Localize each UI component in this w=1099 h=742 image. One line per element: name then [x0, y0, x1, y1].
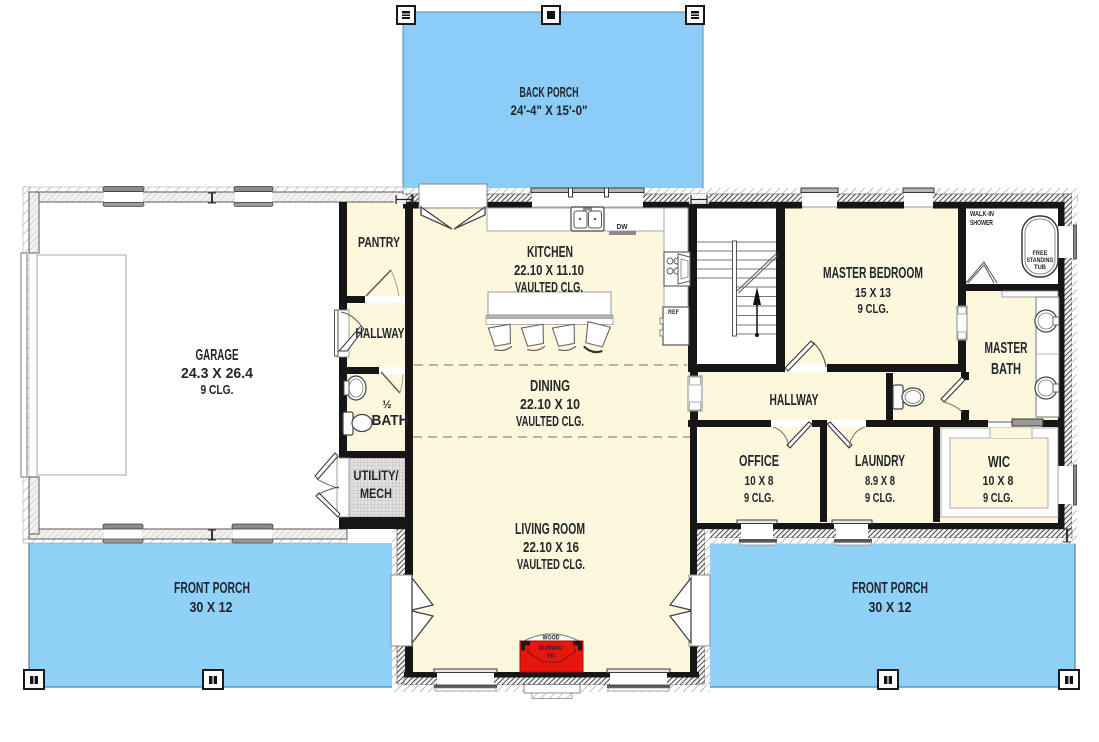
svg-text:HALLWAY: HALLWAY — [356, 326, 405, 342]
svg-text:BURNING: BURNING — [539, 646, 563, 652]
svg-text:LAUNDRY: LAUNDRY — [855, 453, 905, 470]
svg-text:½: ½ — [382, 399, 391, 411]
svg-text:UTILITY/: UTILITY/ — [354, 467, 399, 483]
svg-text:BACK PORCH: BACK PORCH — [520, 84, 579, 101]
svg-text:9 CLG.: 9 CLG. — [865, 490, 895, 505]
svg-text:OFFICE: OFFICE — [739, 453, 779, 470]
svg-text:MECH: MECH — [360, 485, 392, 501]
svg-text:22.10 X 10: 22.10 X 10 — [520, 396, 580, 413]
svg-text:FP: FP — [547, 654, 555, 660]
svg-text:KITCHEN: KITCHEN — [527, 244, 573, 261]
svg-text:DW: DW — [617, 224, 628, 231]
svg-text:30 X 12: 30 X 12 — [869, 599, 912, 616]
svg-text:TUB: TUB — [1034, 265, 1047, 271]
svg-text:WIC: WIC — [988, 454, 1010, 471]
svg-text:15 X 13: 15 X 13 — [855, 285, 891, 300]
svg-text:FRONT PORCH: FRONT PORCH — [852, 580, 928, 597]
svg-text:9 CLG.: 9 CLG. — [858, 301, 889, 316]
svg-text:22.10 X 16: 22.10 X 16 — [523, 539, 579, 556]
svg-text:FREE: FREE — [1033, 251, 1048, 257]
svg-text:10 X 8: 10 X 8 — [745, 473, 774, 488]
svg-text:PANTRY: PANTRY — [358, 235, 400, 251]
svg-text:LIVING ROOM: LIVING ROOM — [515, 521, 585, 538]
svg-text:BATH: BATH — [991, 361, 1021, 378]
svg-text:DINING: DINING — [530, 378, 570, 395]
svg-text:WOOD: WOOD — [543, 636, 561, 642]
svg-text:REF: REF — [668, 309, 679, 316]
svg-text:24'-4" X 15'-0": 24'-4" X 15'-0" — [511, 102, 588, 118]
svg-text:VAULTED CLG.: VAULTED CLG. — [516, 413, 584, 430]
svg-text:10 X 8: 10 X 8 — [983, 473, 1014, 488]
svg-text:24.3 X 26.4: 24.3 X 26.4 — [181, 365, 254, 382]
svg-text:VAULTED CLG.: VAULTED CLG. — [515, 279, 583, 296]
svg-text:FRONT PORCH: FRONT PORCH — [174, 580, 250, 597]
svg-text:9 CLG.: 9 CLG. — [983, 490, 1013, 505]
svg-text:GARAGE: GARAGE — [196, 347, 239, 364]
svg-text:HALLWAY: HALLWAY — [770, 392, 819, 409]
svg-text:SHOWER: SHOWER — [970, 220, 993, 227]
svg-text:WALK-IN: WALK-IN — [970, 211, 994, 218]
svg-text:8.9 X 8: 8.9 X 8 — [865, 473, 895, 488]
svg-text:VAULTED CLG.: VAULTED CLG. — [517, 556, 585, 573]
svg-text:22.10 X 11.10: 22.10 X 11.10 — [514, 262, 584, 279]
svg-text:BATH: BATH — [372, 413, 409, 429]
svg-text:MASTER BEDROOM: MASTER BEDROOM — [823, 265, 923, 282]
svg-text:9 CLG.: 9 CLG. — [744, 490, 774, 505]
svg-text:MASTER: MASTER — [985, 340, 1028, 357]
svg-text:STANDING: STANDING — [1027, 258, 1054, 264]
svg-text:9 CLG.: 9 CLG. — [201, 382, 234, 397]
svg-text:30 X 12: 30 X 12 — [190, 599, 233, 616]
